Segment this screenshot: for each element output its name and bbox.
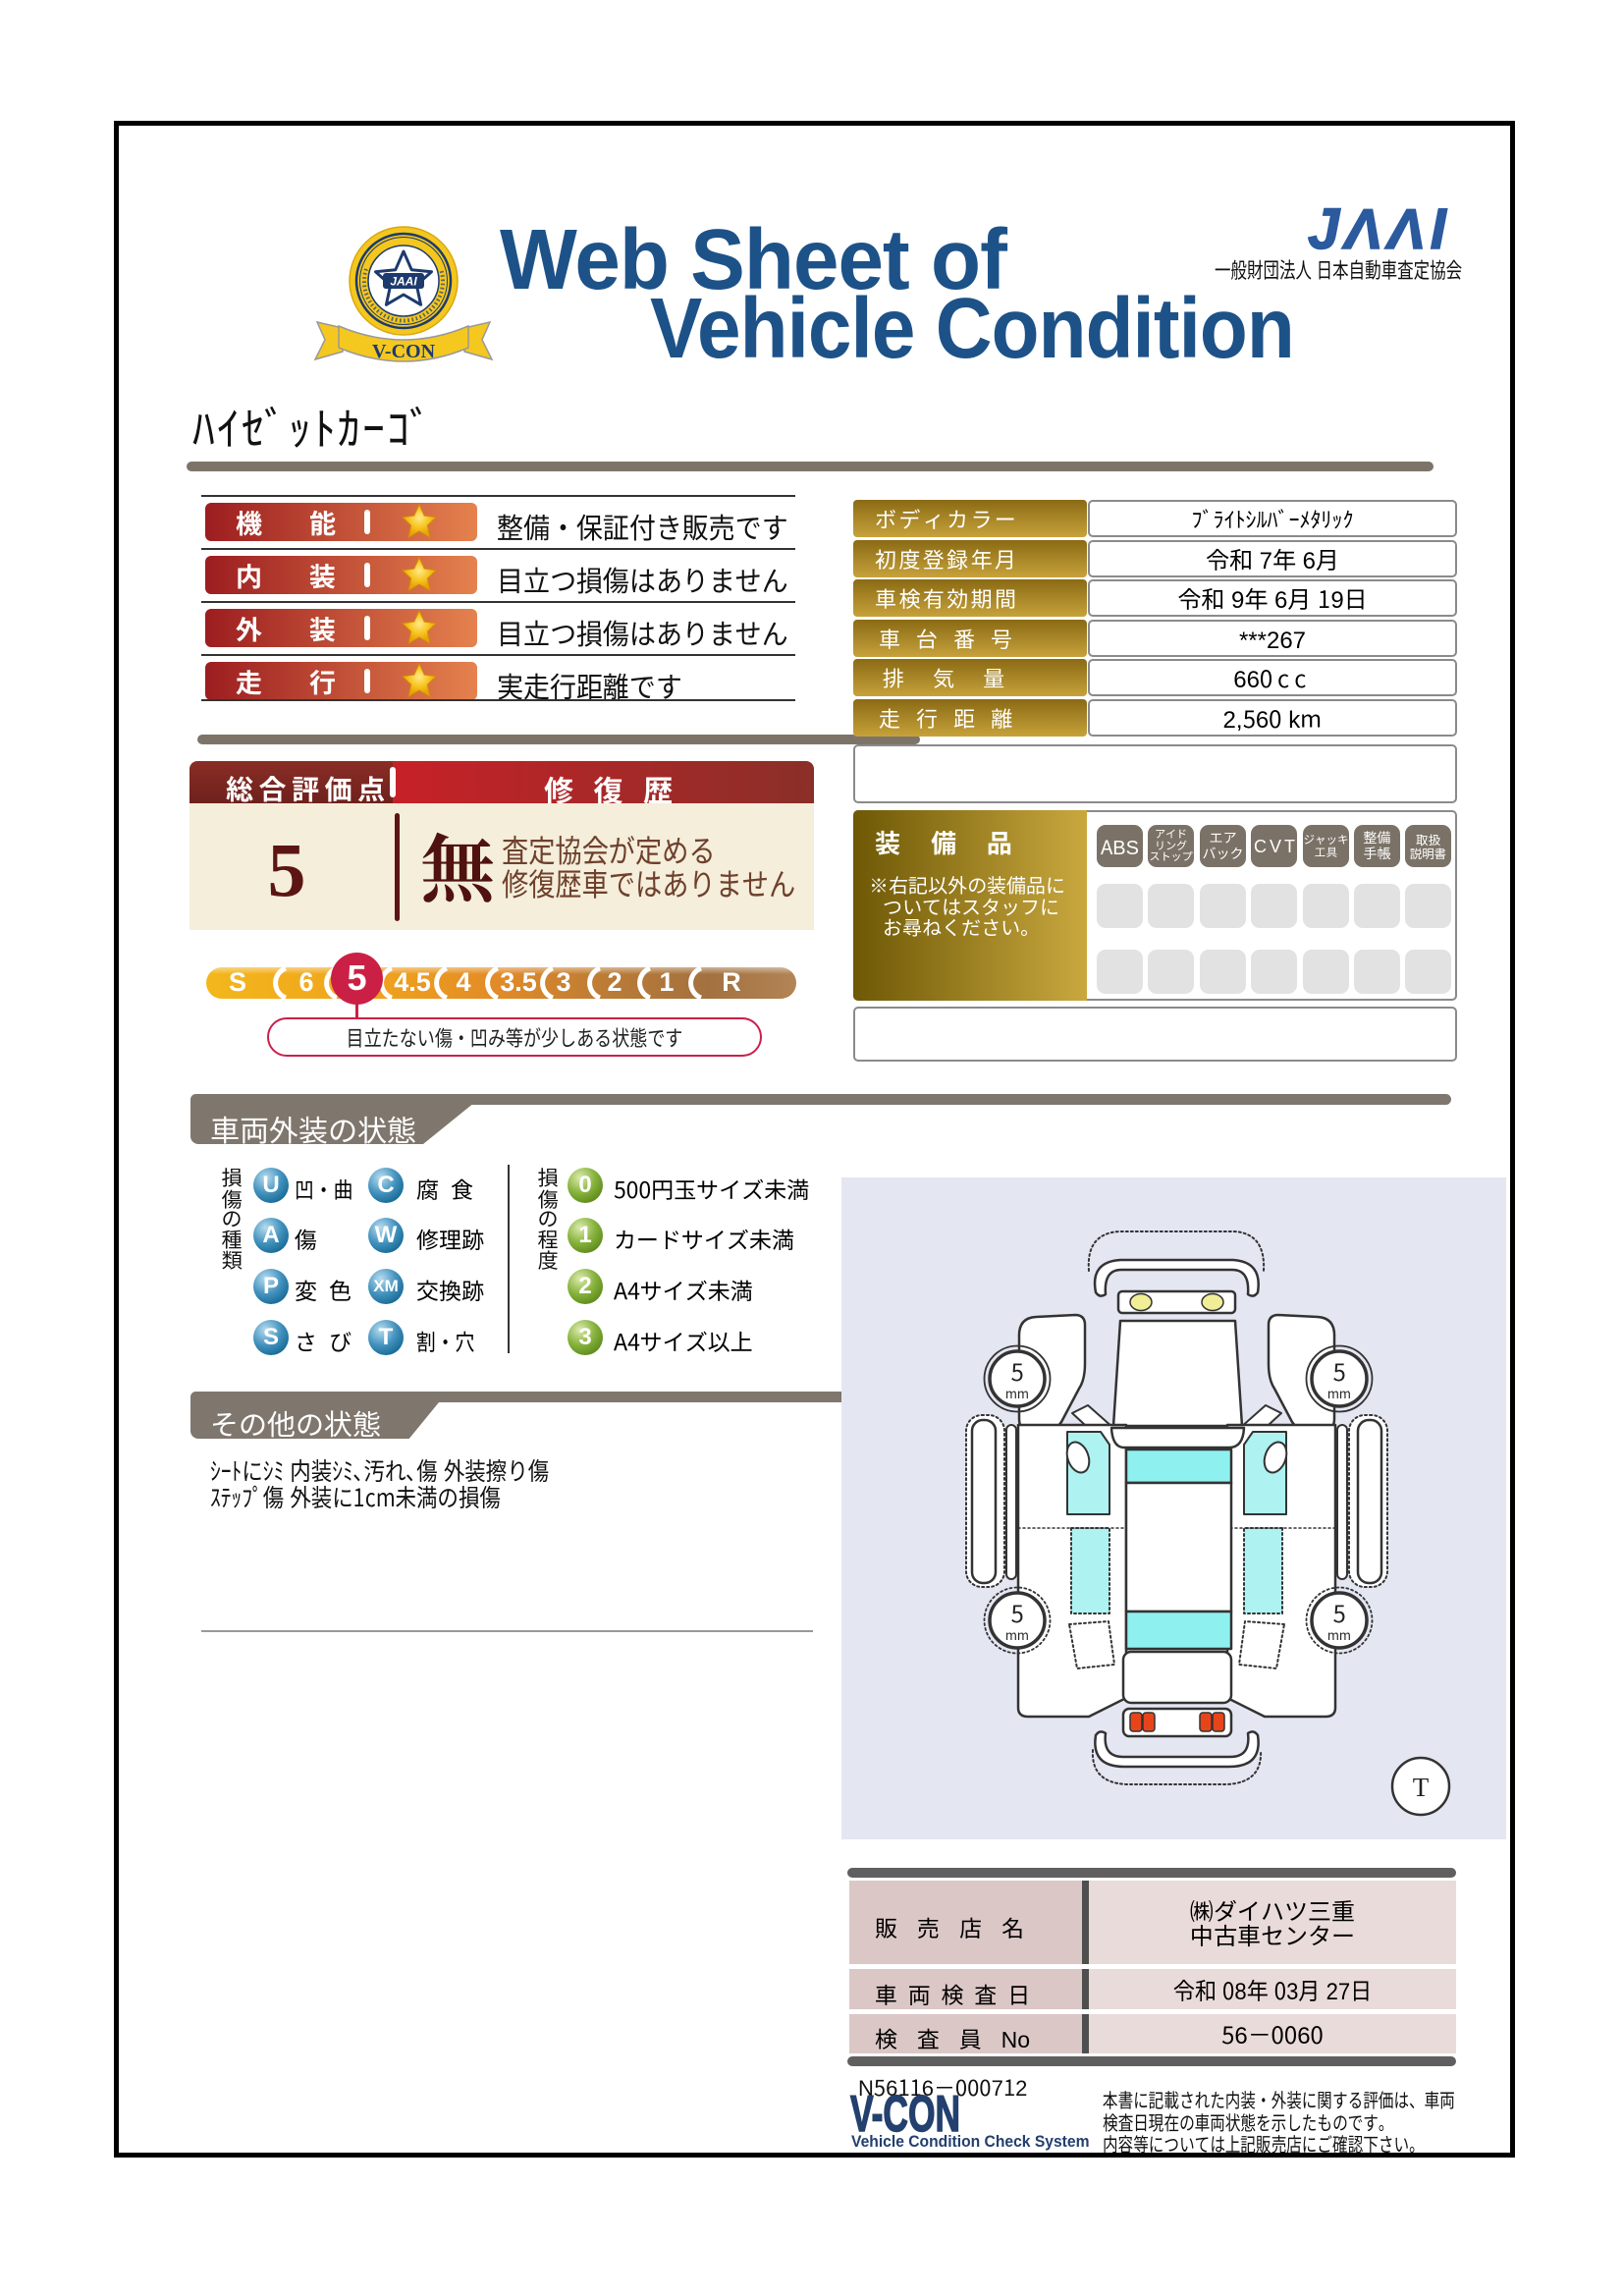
svg-text:R: R — [722, 967, 741, 997]
svg-text:mm: mm — [1327, 1625, 1351, 1644]
svg-text:S: S — [229, 967, 246, 997]
svg-text:3.5: 3.5 — [500, 967, 537, 997]
svg-text:5: 5 — [1332, 1595, 1345, 1629]
svg-text:1: 1 — [659, 967, 674, 997]
svg-text:mm: mm — [1005, 1625, 1029, 1644]
svg-text:V-CON: V-CON — [372, 341, 436, 362]
svg-text:mm: mm — [1327, 1384, 1351, 1402]
svg-text:JAAI: JAAI — [390, 275, 417, 289]
svg-text:6: 6 — [298, 967, 313, 997]
svg-text:mm: mm — [1005, 1384, 1029, 1402]
svg-text:3: 3 — [556, 967, 570, 997]
svg-text:T: T — [1413, 1766, 1430, 1804]
svg-text:5: 5 — [1010, 1353, 1023, 1388]
svg-text:2: 2 — [607, 967, 622, 997]
svg-text:4.5: 4.5 — [394, 967, 431, 997]
svg-text:5: 5 — [1010, 1595, 1023, 1629]
svg-text:5: 5 — [1332, 1353, 1345, 1388]
svg-text:4: 4 — [456, 967, 470, 997]
